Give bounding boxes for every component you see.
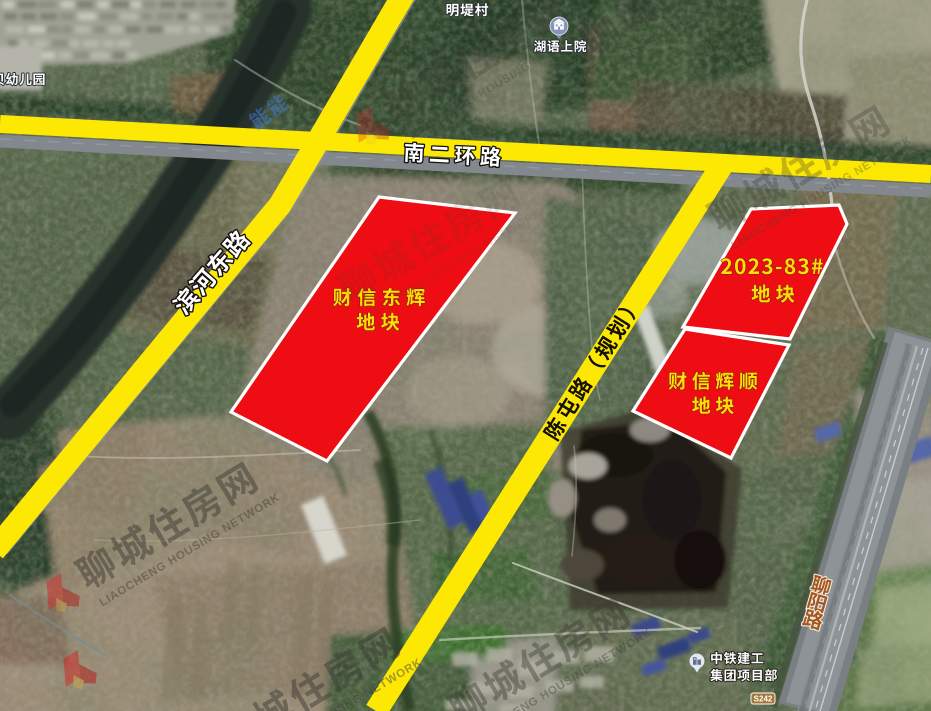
- svg-text:S242: S242: [754, 695, 773, 704]
